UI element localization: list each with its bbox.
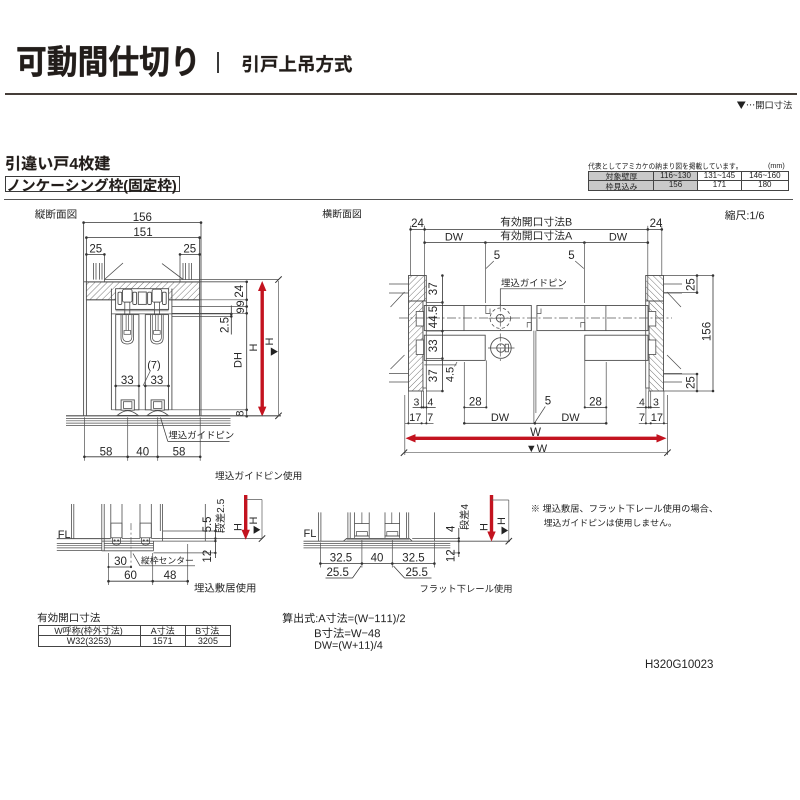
svg-text:33: 33 xyxy=(121,375,134,387)
svg-text:48: 48 xyxy=(164,570,177,582)
svg-text:H: H xyxy=(233,523,245,531)
svg-text:30: 30 xyxy=(114,556,127,568)
svg-text:37: 37 xyxy=(428,369,440,382)
svg-text:25: 25 xyxy=(89,243,102,255)
svg-text:4: 4 xyxy=(639,396,645,408)
svg-text:3: 3 xyxy=(413,396,419,408)
svg-text:44.5: 44.5 xyxy=(428,306,440,328)
svg-text:5: 5 xyxy=(545,396,551,408)
svg-text:(7): (7) xyxy=(147,360,160,372)
svg-text:33: 33 xyxy=(428,339,440,352)
svg-text:12: 12 xyxy=(446,549,458,562)
svg-text:17: 17 xyxy=(409,412,421,424)
svg-text:DW: DW xyxy=(445,232,464,244)
svg-text:H: H xyxy=(248,516,260,524)
svg-text:24: 24 xyxy=(411,218,424,230)
svg-text:5.5: 5.5 xyxy=(202,516,214,532)
svg-text:5: 5 xyxy=(494,250,500,262)
svg-text:FL: FL xyxy=(304,528,317,540)
svg-text:7: 7 xyxy=(639,412,645,424)
svg-text:25: 25 xyxy=(685,278,697,291)
svg-text:7: 7 xyxy=(427,412,433,424)
svg-text:25.5: 25.5 xyxy=(327,567,349,579)
svg-text:12: 12 xyxy=(202,550,214,563)
svg-text:25.5: 25.5 xyxy=(406,567,428,579)
svg-text:▼W: ▼W xyxy=(526,443,548,455)
svg-text:40: 40 xyxy=(136,446,149,458)
svg-text:24: 24 xyxy=(234,284,246,297)
svg-text:25: 25 xyxy=(685,376,697,389)
svg-text:60: 60 xyxy=(124,570,137,582)
svg-text:9: 9 xyxy=(235,300,247,306)
svg-text:4.5: 4.5 xyxy=(445,367,457,382)
svg-text:40: 40 xyxy=(371,552,384,564)
svg-text:28: 28 xyxy=(589,396,602,408)
svg-text:32.5: 32.5 xyxy=(402,552,424,564)
svg-text:DW: DW xyxy=(609,232,628,244)
svg-text:3: 3 xyxy=(653,396,659,408)
svg-text:33: 33 xyxy=(151,375,164,387)
svg-text:58: 58 xyxy=(100,446,113,458)
svg-text:58: 58 xyxy=(173,446,186,458)
svg-text:DH: DH xyxy=(233,352,245,368)
svg-text:151: 151 xyxy=(133,227,152,239)
svg-text:4: 4 xyxy=(427,396,433,408)
svg-text:4: 4 xyxy=(446,525,458,532)
svg-text:9: 9 xyxy=(235,307,247,313)
svg-text:DW: DW xyxy=(561,412,580,424)
svg-text:37: 37 xyxy=(428,282,440,295)
svg-text:17: 17 xyxy=(651,412,663,424)
svg-text:H: H xyxy=(496,517,508,525)
svg-text:H: H xyxy=(479,523,491,531)
svg-text:28: 28 xyxy=(469,396,482,408)
svg-text:H: H xyxy=(248,343,260,351)
svg-text:DW: DW xyxy=(491,412,510,424)
svg-text:2.5: 2.5 xyxy=(220,317,232,333)
svg-text:25: 25 xyxy=(183,243,196,255)
svg-text:24: 24 xyxy=(650,218,663,230)
svg-text:W: W xyxy=(530,427,541,439)
svg-text:H: H xyxy=(264,337,276,345)
svg-text:156: 156 xyxy=(133,212,152,224)
svg-text:32.5: 32.5 xyxy=(330,552,352,564)
svg-text:156: 156 xyxy=(701,322,713,341)
svg-text:5: 5 xyxy=(568,250,574,262)
